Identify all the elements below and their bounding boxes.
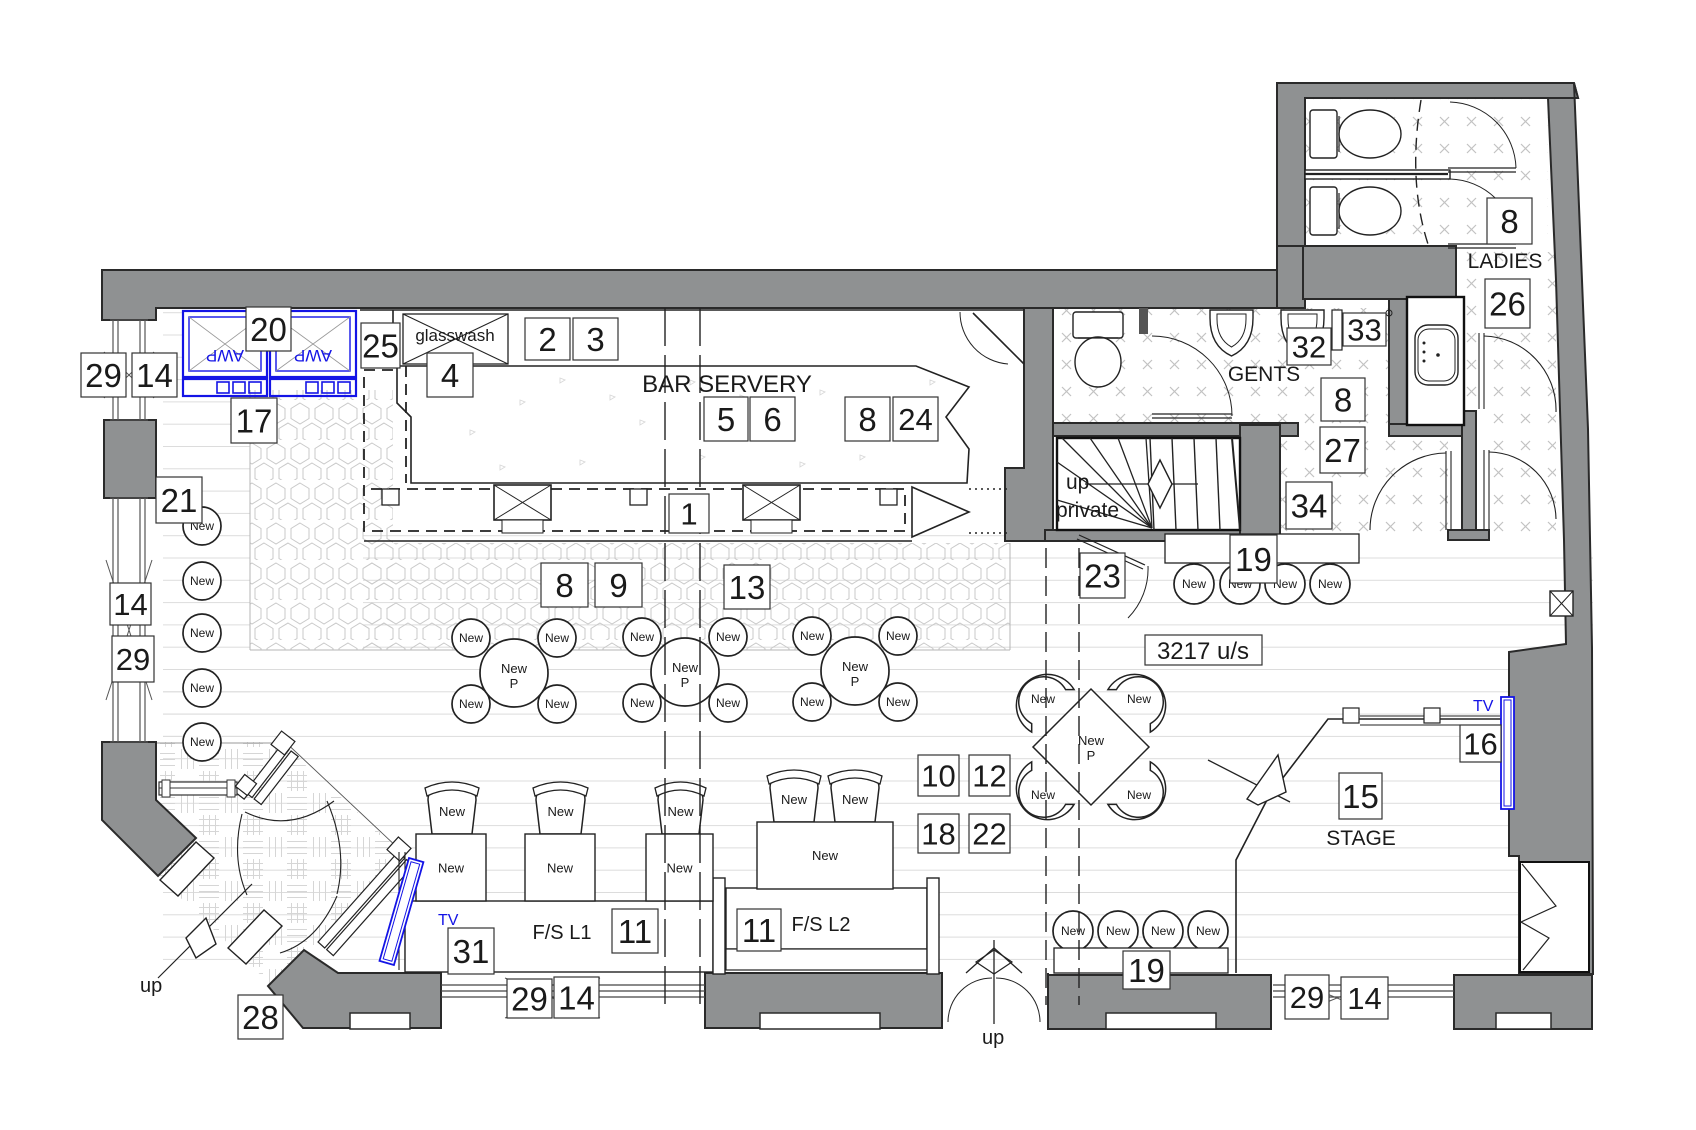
svg-text:23: 23 <box>1084 557 1121 594</box>
svg-text:New: New <box>1127 692 1151 706</box>
svg-text:27: 27 <box>1324 432 1361 469</box>
svg-text:29: 29 <box>85 357 122 394</box>
svg-text:TV: TV <box>438 912 459 929</box>
svg-text:21: 21 <box>161 482 198 519</box>
svg-text:New: New <box>1318 577 1342 591</box>
svg-text:New: New <box>630 630 654 644</box>
svg-text:29: 29 <box>116 642 150 677</box>
svg-text:New: New <box>1061 924 1085 938</box>
svg-text:22: 22 <box>972 817 1006 852</box>
svg-text:New: New <box>672 660 699 675</box>
svg-text:28: 28 <box>242 999 279 1036</box>
svg-text:16: 16 <box>1463 727 1497 762</box>
svg-text:2: 2 <box>538 321 556 358</box>
svg-text:New: New <box>1031 788 1055 802</box>
svg-text:BAR SERVERY: BAR SERVERY <box>642 371 812 398</box>
svg-text:14: 14 <box>1347 981 1381 1016</box>
svg-text:P: P <box>510 676 519 691</box>
svg-text:New: New <box>842 792 869 807</box>
svg-text:14: 14 <box>113 587 147 622</box>
svg-text:New: New <box>667 804 694 819</box>
svg-text:34: 34 <box>1291 487 1328 524</box>
svg-text:26: 26 <box>1489 285 1526 322</box>
svg-text:New: New <box>190 574 214 588</box>
svg-text:6: 6 <box>763 401 781 438</box>
svg-text:13: 13 <box>729 569 766 606</box>
svg-text:New: New <box>842 659 869 674</box>
svg-text:New: New <box>800 695 824 709</box>
svg-text:New: New <box>459 697 483 711</box>
svg-text:New: New <box>459 631 483 645</box>
svg-text:GENTS: GENTS <box>1228 363 1300 386</box>
svg-text:up: up <box>1066 471 1089 494</box>
svg-text:11: 11 <box>618 913 652 950</box>
svg-text:5: 5 <box>717 401 735 438</box>
svg-text:14: 14 <box>558 979 595 1016</box>
svg-text:3: 3 <box>586 321 604 358</box>
svg-text:25: 25 <box>362 327 399 364</box>
svg-text:New: New <box>439 804 466 819</box>
svg-text:New: New <box>438 861 465 876</box>
svg-text:glasswash: glasswash <box>415 326 494 345</box>
svg-text:F/S L1: F/S L1 <box>533 922 592 944</box>
svg-text:TV: TV <box>1473 698 1494 715</box>
svg-text:19: 19 <box>1128 952 1165 989</box>
svg-text:10: 10 <box>921 759 955 794</box>
svg-text:New: New <box>1151 924 1175 938</box>
svg-text:private: private <box>1056 499 1119 522</box>
svg-text:New: New <box>501 661 528 676</box>
svg-text:14: 14 <box>136 357 173 394</box>
svg-text:8: 8 <box>1334 381 1352 418</box>
svg-text:New: New <box>545 697 569 711</box>
svg-text:New: New <box>1182 577 1206 591</box>
svg-text:19: 19 <box>1235 541 1272 578</box>
svg-text:New: New <box>630 696 654 710</box>
svg-text:11: 11 <box>742 912 776 949</box>
svg-text:32: 32 <box>1292 330 1326 365</box>
svg-text:9: 9 <box>609 567 627 604</box>
svg-text:15: 15 <box>1342 778 1379 815</box>
svg-text:up: up <box>140 975 162 997</box>
svg-text:AWP: AWP <box>294 346 332 365</box>
svg-text:LADIES: LADIES <box>1468 250 1543 273</box>
svg-text:3217 u/s: 3217 u/s <box>1157 638 1249 665</box>
svg-text:AWP: AWP <box>206 346 244 365</box>
svg-text:New: New <box>190 681 214 695</box>
svg-text:New: New <box>716 630 740 644</box>
svg-text:12: 12 <box>972 759 1006 794</box>
svg-text:29: 29 <box>1290 980 1324 1015</box>
svg-text:New: New <box>190 626 214 640</box>
svg-text:31: 31 <box>453 933 490 970</box>
svg-text:New: New <box>545 631 569 645</box>
svg-text:4: 4 <box>441 357 459 394</box>
svg-text:New: New <box>1196 924 1220 938</box>
svg-text:New: New <box>1078 733 1105 748</box>
svg-text:up: up <box>982 1027 1004 1049</box>
svg-text:New: New <box>1031 692 1055 706</box>
svg-text:New: New <box>547 861 574 876</box>
svg-text:20: 20 <box>250 311 287 348</box>
svg-text:33: 33 <box>1347 313 1381 348</box>
svg-text:New: New <box>800 629 824 643</box>
svg-text:P: P <box>851 674 860 689</box>
svg-text:24: 24 <box>898 402 932 437</box>
svg-text:New: New <box>812 848 839 863</box>
svg-text:8: 8 <box>1500 203 1518 240</box>
svg-text:F/S L2: F/S L2 <box>792 914 851 936</box>
svg-text:New: New <box>547 804 574 819</box>
svg-text:18: 18 <box>921 817 955 852</box>
svg-text:New: New <box>1127 788 1151 802</box>
svg-text:New: New <box>190 735 214 749</box>
svg-text:P: P <box>1087 748 1096 763</box>
svg-text:29: 29 <box>511 980 548 1017</box>
svg-text:P: P <box>681 675 690 690</box>
svg-text:New: New <box>666 861 693 876</box>
svg-text:New: New <box>716 696 740 710</box>
svg-text:New: New <box>886 629 910 643</box>
svg-text:New: New <box>1106 924 1130 938</box>
svg-text:STAGE: STAGE <box>1326 827 1396 850</box>
svg-text:New: New <box>781 792 808 807</box>
svg-text:8: 8 <box>555 567 573 604</box>
svg-text:17: 17 <box>236 402 273 439</box>
svg-text:8: 8 <box>858 401 876 438</box>
svg-text:New: New <box>886 695 910 709</box>
svg-text:1: 1 <box>680 497 697 532</box>
